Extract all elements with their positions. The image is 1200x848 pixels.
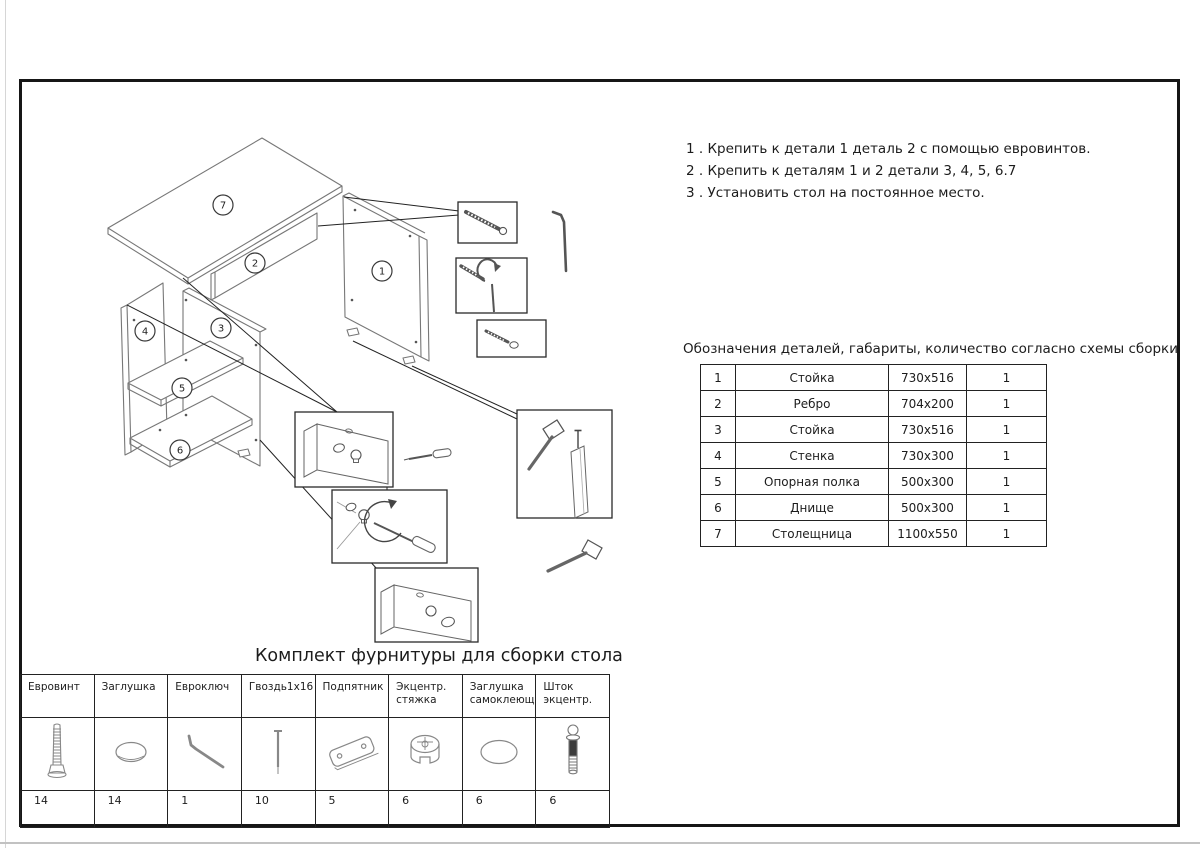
callout-2: 2 [252, 259, 258, 270]
callout-6: 6 [177, 446, 183, 457]
callout-1: 1 [379, 267, 385, 278]
hardware-qty-row: 14 14 1 10 5 6 6 6 [21, 791, 610, 828]
adhesive-cap-icon [464, 719, 534, 785]
part-num: 7 [701, 521, 736, 547]
part-qty: 1 [967, 521, 1047, 547]
scanned-sheet: { "sheet": { "background": "#ffffff", "f… [0, 0, 1200, 848]
hw-qty: 10 [241, 791, 315, 828]
part-size: 730x300 [889, 443, 967, 469]
part-name: Стойка [736, 417, 889, 443]
part-name: Ребро [736, 391, 889, 417]
callout-4: 4 [142, 327, 148, 338]
hex-key-large-icon [553, 212, 566, 271]
hw-qty: 6 [462, 791, 536, 828]
cam-lock-icon [390, 719, 460, 785]
eccentric-rod-icon [538, 719, 608, 785]
hw-qty: 5 [315, 791, 389, 828]
hw-label: Заглушка [94, 675, 168, 718]
hw-qty: 14 [21, 791, 95, 828]
part-name: Столещница [736, 521, 889, 547]
hw-label: Заглушка самоклеющ. [462, 675, 536, 718]
hardware-header-row: Евровинт Заглушка Евроключ Гвоздь1х16 По… [21, 675, 610, 718]
part-qty: 1 [967, 469, 1047, 495]
part-num: 4 [701, 443, 736, 469]
nail-icon [243, 719, 313, 785]
cap-icon [96, 719, 166, 785]
part-size: 500x300 [889, 469, 967, 495]
foot-pad-icon [317, 719, 387, 785]
part-name: Стойка [736, 365, 889, 391]
hw-label: Евровинт [21, 675, 95, 718]
hex-key-icon [170, 719, 240, 785]
callout-7: 7 [220, 201, 226, 212]
part-num: 1 [701, 365, 736, 391]
page-bottom-edge [0, 842, 1200, 844]
hw-label: Экцентр. стяжка [389, 675, 463, 718]
parts-row: 7 Столещница 1100x550 1 [701, 521, 1047, 547]
parts-row: 3 Стойка 730x516 1 [701, 417, 1047, 443]
part-num: 2 [701, 391, 736, 417]
part-qty: 1 [967, 365, 1047, 391]
part-qty: 1 [967, 443, 1047, 469]
part-size: 730x516 [889, 365, 967, 391]
hw-label: Шток экцентр. [536, 675, 610, 718]
part-qty: 1 [967, 391, 1047, 417]
detail-box-eccentric-rod [477, 320, 546, 357]
hw-label: Гвоздь1х16 [241, 675, 315, 718]
assembly-diagram: 1 2 3 4 5 6 7 [20, 80, 680, 660]
hw-qty: 14 [94, 791, 168, 828]
part-name: Стенка [736, 443, 889, 469]
parts-table: 1 Стойка 730x516 1 2 Ребро 704x200 1 3 С… [700, 364, 1047, 547]
instruction-step: 2 . Крепить к деталям 1 и 2 детали 3, 4,… [686, 160, 1091, 182]
parts-row: 2 Ребро 704x200 1 [701, 391, 1047, 417]
hardware-table: Евровинт Заглушка Евроключ Гвоздь1х16 По… [20, 674, 610, 828]
part-size: 500x300 [889, 495, 967, 521]
assembly-instructions: 1 . Крепить к детали 1 деталь 2 с помощь… [686, 138, 1091, 204]
part-num: 6 [701, 495, 736, 521]
part-size: 704x200 [889, 391, 967, 417]
instruction-step: 1 . Крепить к детали 1 деталь 2 с помощь… [686, 138, 1091, 160]
part-qty: 1 [967, 495, 1047, 521]
part-name: Опорная полка [736, 469, 889, 495]
part-name: Днище [736, 495, 889, 521]
parts-table-title: Обозначения деталей, габариты, количеств… [683, 341, 1178, 357]
parts-row: 4 Стенка 730x300 1 [701, 443, 1047, 469]
hardware-icon-row [21, 718, 610, 791]
parts-row: 6 Днище 500x300 1 [701, 495, 1047, 521]
callout-5: 5 [179, 384, 185, 395]
hardware-table-title: Комплект фурнитуры для сборки стола [255, 646, 615, 666]
part-size: 730x516 [889, 417, 967, 443]
hw-qty: 1 [168, 791, 242, 828]
parts-row: 5 Опорная полка 500x300 1 [701, 469, 1047, 495]
hw-label: Евроключ [168, 675, 242, 718]
hw-qty: 6 [389, 791, 463, 828]
part-qty: 1 [967, 417, 1047, 443]
euro-screw-icon [22, 719, 92, 785]
hw-qty: 6 [536, 791, 610, 828]
callout-3: 3 [218, 324, 224, 335]
page-left-edge [5, 0, 6, 848]
parts-row: 1 Стойка 730x516 1 [701, 365, 1047, 391]
part-size: 1100x550 [889, 521, 967, 547]
screwdriver-icon [404, 448, 451, 460]
hw-label: Подпятник [315, 675, 389, 718]
part-num: 5 [701, 469, 736, 495]
hammer-icon [548, 540, 602, 571]
part-num: 3 [701, 417, 736, 443]
instruction-step: 3 . Установить стол на постоянное место. [686, 182, 1091, 204]
